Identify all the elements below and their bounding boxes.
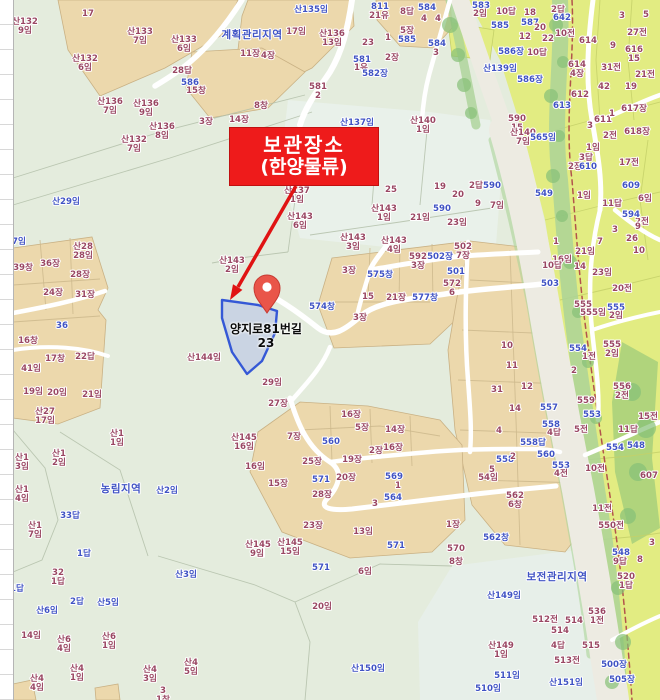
parcel-label: 1 <box>553 237 559 247</box>
parcel-label: 산144임 <box>187 351 221 363</box>
parcel-label: 586장 <box>517 73 543 85</box>
tree-icon <box>451 48 465 62</box>
parcel-label: 614 <box>579 36 597 46</box>
storage-annotation-box: 보관장소 (한양물류) <box>229 127 379 186</box>
parcel-label: 20임 <box>47 386 67 398</box>
parcel-label: 1 <box>385 33 391 43</box>
parcel-label: 2전 <box>603 129 617 141</box>
parcel-label: 17임 <box>286 25 306 37</box>
parcel-label: 22 <box>542 34 554 44</box>
parcel-label: 산13임 <box>15 451 29 472</box>
parcel-label: 25장 <box>302 455 322 467</box>
parcel-label: 550전 <box>598 519 624 531</box>
parcel-label: 510임 <box>475 682 501 694</box>
parcel-label: 4전 <box>554 467 568 479</box>
tree-icon <box>442 17 458 33</box>
parcel-label: 511임 <box>494 669 520 681</box>
parcel-label: 산3임 <box>175 568 197 580</box>
parcel-label: 575창 <box>367 268 393 280</box>
parcel-label: 560 <box>537 450 555 460</box>
parcel-label: 산43임 <box>143 663 157 684</box>
parcel-label: 2답 <box>70 595 84 607</box>
parcel-label: 산17임 <box>28 519 42 540</box>
parcel-label: 17 <box>82 9 94 19</box>
parcel-label: 산2828임 <box>73 240 93 261</box>
annotation-line1: 보관장소 <box>263 134 345 157</box>
parcel-label: 9 <box>475 199 481 209</box>
parcel-label: 5562전 <box>613 382 631 401</box>
parcel-label: 5552임 <box>603 340 621 359</box>
parcel-label: 16창 <box>18 334 38 346</box>
parcel-label: 321답 <box>51 568 65 587</box>
parcel-label: 28답 <box>172 64 192 76</box>
parcel-label: 609 <box>622 181 640 191</box>
parcel-label: 20장 <box>336 471 356 483</box>
parcel-label: 4 <box>435 14 441 24</box>
parcel-label: 8답 <box>400 5 414 17</box>
parcel-label: 1답 <box>77 547 91 559</box>
address-number: 23 <box>208 336 324 350</box>
parcel-label: 11답 <box>602 197 622 209</box>
parcel-label: 574창 <box>309 300 335 312</box>
parcel-label: 23임 <box>447 216 467 228</box>
parcel-label: 3 <box>587 121 593 131</box>
map-viewport[interactable]: 산1329임17산1337임산1336임산1326임28답58615창산1367… <box>0 0 660 700</box>
parcel-label: 4답 <box>551 639 565 651</box>
parcel-label: 610 <box>579 162 597 172</box>
parcel-label: 3 <box>433 48 439 58</box>
parcel-label: 562창 <box>483 531 509 543</box>
parcel-label: 17창 <box>45 352 65 364</box>
cadastral-map-canvas: 산1329임17산1337임산1336임산1326임28답58615창산1367… <box>0 0 660 700</box>
parcel-label: 10전 <box>585 462 605 474</box>
parcel-label: 24장 <box>43 286 63 298</box>
parcel-label: 5201답 <box>617 572 635 591</box>
tree-icon <box>546 169 560 183</box>
parcel-label: 산6임 <box>36 604 58 616</box>
parcel-label: 25 <box>385 185 397 195</box>
parcel-label: 2 <box>571 366 577 376</box>
zone-label: 농림지역 <box>101 482 142 495</box>
parcel-label: 5전 <box>574 423 588 435</box>
parcel-label: 산13613임 <box>319 27 345 48</box>
tree-icon <box>465 107 477 119</box>
tree-icon <box>615 634 631 650</box>
parcel-label: 산11임 <box>110 427 124 448</box>
parcel-label: 19장 <box>342 453 362 465</box>
parcel-label: 21임 <box>575 245 595 257</box>
parcel-label: 15창 <box>186 84 206 96</box>
parcel-label: 505장 <box>609 673 635 685</box>
parcel-label: 4장 <box>261 49 275 61</box>
parcel-label: 산61임 <box>102 630 116 651</box>
parcel-label: 512전 <box>532 613 558 625</box>
parcel-label: 31 <box>491 385 503 395</box>
parcel-label: 1임 <box>577 189 591 201</box>
parcel-label: 515 <box>582 641 600 651</box>
parcel-label: 590 <box>483 181 501 191</box>
parcel-label: 585 <box>491 21 509 31</box>
parcel-label: 20전 <box>612 282 632 294</box>
parcel-label: 7 <box>597 237 603 247</box>
parcel-label: 9 <box>635 222 641 232</box>
parcel-label: 22답 <box>75 350 95 362</box>
parcel-label: 594 <box>622 210 640 220</box>
parcel-label: 585 <box>398 35 416 45</box>
parcel-label: 617장 <box>621 102 647 114</box>
parcel-label: 5027장 <box>454 242 472 261</box>
annotation-line2: (한양물류) <box>260 157 347 179</box>
parcel-label: 554 <box>606 443 624 453</box>
tree-icon <box>556 210 568 222</box>
address-label: 양지로81번길 23 <box>208 322 324 351</box>
parcel-label: 36 <box>56 321 68 331</box>
parcel-label: 21임 <box>410 211 430 223</box>
parcel-label: 21전 <box>635 68 655 80</box>
parcel-label: 20 <box>534 23 546 33</box>
parcel-label: 2임 <box>473 7 487 19</box>
parcel-label: 16임 <box>245 460 265 472</box>
parcel-label: 23장 <box>303 519 323 531</box>
parcel-label: 18 <box>524 8 536 18</box>
parcel-label: 571 <box>312 475 330 485</box>
parcel-label: 31장 <box>75 288 95 300</box>
parcel-label: 3장 <box>353 311 367 323</box>
parcel-label: 5361전 <box>588 607 606 626</box>
parcel-label: 1 <box>609 109 615 119</box>
address-street: 양지로81번길 <box>208 322 324 336</box>
parcel-label: 7임 <box>12 235 26 247</box>
parcel-label: 612 <box>571 90 589 100</box>
parcel-label: 산12임 <box>52 447 66 468</box>
parcel-label: 5 <box>643 10 649 20</box>
parcel-label: 17전 <box>619 156 639 168</box>
parcel-label: 2 <box>510 452 516 462</box>
parcel-label: 514 <box>551 626 569 636</box>
parcel-label: 2장 <box>385 51 399 63</box>
parcel-label: 3장 <box>199 115 213 127</box>
parcel-label: 14임 <box>21 629 41 641</box>
parcel-label: 13임 <box>353 525 373 537</box>
parcel-label: 571 <box>312 563 330 573</box>
parcel-label: 642 <box>553 13 571 23</box>
parcel-label: 577창 <box>412 291 438 303</box>
parcel-label: 500장 <box>601 658 627 670</box>
parcel-label: 7장 <box>287 430 301 442</box>
parcel-label: 15전 <box>638 410 658 422</box>
parcel-label: 산139임 <box>483 62 517 74</box>
parcel-label: 6144장 <box>568 60 586 79</box>
parcel-label: 586장 <box>498 45 524 57</box>
parcel-label: 23임 <box>592 266 612 278</box>
parcel-label: 4 <box>421 14 427 24</box>
parcel-label: 6임 <box>638 192 652 204</box>
parcel-label: 2답 <box>469 179 483 191</box>
parcel-label: 산41임 <box>70 662 84 683</box>
parcel-label: 27장 <box>268 397 288 409</box>
tree-icon <box>457 78 471 92</box>
parcel-label: 560 <box>322 437 340 447</box>
parcel-label: 1 <box>395 481 401 491</box>
parcel-label: 4답 <box>547 426 561 438</box>
parcel-label: 513전 <box>554 654 580 666</box>
parcel-label: 21임 <box>82 388 102 400</box>
parcel-label: 5923장 <box>409 252 427 271</box>
parcel-label: 28장 <box>312 488 332 500</box>
parcel-label: 5626창 <box>506 491 524 510</box>
parcel-label: 20임 <box>312 600 332 612</box>
parcel-label: 14장 <box>229 113 249 125</box>
parcel-label: 10 <box>501 341 513 351</box>
parcel-label: 54임 <box>478 471 498 483</box>
parcel-label: 산2임 <box>156 484 178 496</box>
parcel-label: 1장 <box>446 518 460 530</box>
parcel-label: 산45임 <box>184 656 198 677</box>
parcel-label: 33답 <box>60 509 80 521</box>
parcel-label: 571 <box>387 541 405 551</box>
parcel-label: 7임 <box>490 199 504 211</box>
parcel-label: 557 <box>540 403 558 413</box>
parcel-label: 3 <box>612 225 618 235</box>
parcel-label: 14 <box>509 404 521 414</box>
parcel-label: 산149임 <box>487 589 521 601</box>
parcel-label: 11답 <box>618 423 638 435</box>
parcel-label: 10답 <box>542 259 562 271</box>
parcel-label: 9 <box>610 41 616 51</box>
parcel-label: 10전 <box>555 27 575 39</box>
parcel-label: 23 <box>362 38 374 48</box>
parcel-label: 산14임 <box>15 483 29 504</box>
parcel-label: 29임 <box>262 376 282 388</box>
parcel-label: 8창 <box>449 555 463 567</box>
parcel-label: 555임 <box>580 306 606 318</box>
parcel-label: 26 <box>626 234 638 244</box>
parcel-label: 6임 <box>358 565 372 577</box>
parcel-label: 570 <box>447 544 465 554</box>
parcel-label: 3 <box>619 11 625 21</box>
parcel-label: 514 <box>565 616 583 626</box>
parcel-label: 2임 <box>609 309 623 321</box>
parcel-label: 558답 <box>520 436 546 448</box>
parcel-label: 11장 <box>240 47 260 59</box>
zone-label: 보전관리지역 <box>527 570 588 583</box>
parcel-label: 19 <box>625 82 637 92</box>
parcel-label: 9답 <box>613 555 627 567</box>
parcel-label: 503 <box>541 279 559 289</box>
parcel-label: 3 <box>649 538 655 548</box>
parcel-label: 1임 <box>586 141 600 153</box>
parcel-label: 559 <box>577 396 595 406</box>
parcel-label: 산64임 <box>57 633 71 654</box>
parcel-label: 607 <box>640 471 658 481</box>
parcel-label: 16장 <box>383 441 403 453</box>
parcel-label: 20 <box>452 190 464 200</box>
parcel-label: 15장 <box>268 477 288 489</box>
parcel-label: 36장 <box>40 257 60 269</box>
parcel-label: 39창 <box>13 261 33 273</box>
parcel-label: 산150임 <box>351 662 385 674</box>
parcel-label: 5장 <box>355 421 369 433</box>
parcel-label: 3장 <box>342 264 356 276</box>
parcel-label: 21유 <box>369 10 389 21</box>
parcel-label: 2장 <box>369 444 383 456</box>
parcel-label: 502장 <box>427 250 453 262</box>
parcel-label: 31전 <box>601 61 621 73</box>
parcel-label: 12 <box>519 32 531 42</box>
parcel-label: 산151임 <box>549 676 583 688</box>
parcel-label: 19임 <box>23 385 43 397</box>
parcel-label: 산29임 <box>52 195 80 207</box>
parcel-label: 11 <box>506 361 518 371</box>
parcel-label: 10 <box>633 246 645 256</box>
parcel-label: 501 <box>447 267 465 277</box>
parcel-label: 4 <box>496 426 502 436</box>
parcel-label: 553 <box>583 410 601 420</box>
parcel-label: 582장 <box>362 67 388 79</box>
parcel-label: 618장 <box>624 125 650 137</box>
parcel-label: 19 <box>434 182 446 192</box>
parcel-label: 14장 <box>385 423 405 435</box>
parcel-label: 565임 <box>530 131 556 143</box>
parcel-label: 9임 <box>250 547 264 559</box>
parcel-label: 14 <box>574 262 586 272</box>
zone-label: 계획관리지역 <box>222 28 283 41</box>
parcel-label: 584 <box>418 3 436 13</box>
parcel-label: 564 <box>384 493 402 503</box>
parcel-label: 산44임 <box>30 672 44 693</box>
parcel-label: 11전 <box>592 502 612 514</box>
parcel-label: 산135임 <box>294 3 328 15</box>
parcel-label: 27전 <box>627 26 647 38</box>
parcel-label: 15 <box>362 292 374 302</box>
parcel-label: 산5임 <box>97 596 119 608</box>
parcel-label: 3 <box>372 499 378 509</box>
parcel-label: 41임 <box>21 362 41 374</box>
parcel-label: 42 <box>598 82 610 92</box>
parcel-label: 590 <box>433 204 451 214</box>
parcel-label: 산2717임 <box>35 405 55 426</box>
parcel-label: 549 <box>535 189 553 199</box>
parcel-label: 28장 <box>70 268 90 280</box>
parcel-label: 1전 <box>582 350 596 362</box>
parcel-label: 10답 <box>527 46 547 58</box>
parcel-label: 산14516임 <box>231 431 257 452</box>
location-pin-hole <box>262 282 271 291</box>
parcel-label: 613 <box>553 101 571 111</box>
parcel-label: 12 <box>521 382 533 392</box>
parcel-label: 21장 <box>386 291 406 303</box>
parcel-label: 8창 <box>254 99 268 111</box>
spreadsheet-gutter <box>0 0 14 700</box>
parcel-label: 16장 <box>341 408 361 420</box>
parcel-label: 산14515임 <box>277 536 303 557</box>
parcel-label: 10답 <box>496 5 516 17</box>
parcel-label: 548 <box>627 441 645 451</box>
parcel-label: 8 <box>637 555 643 565</box>
